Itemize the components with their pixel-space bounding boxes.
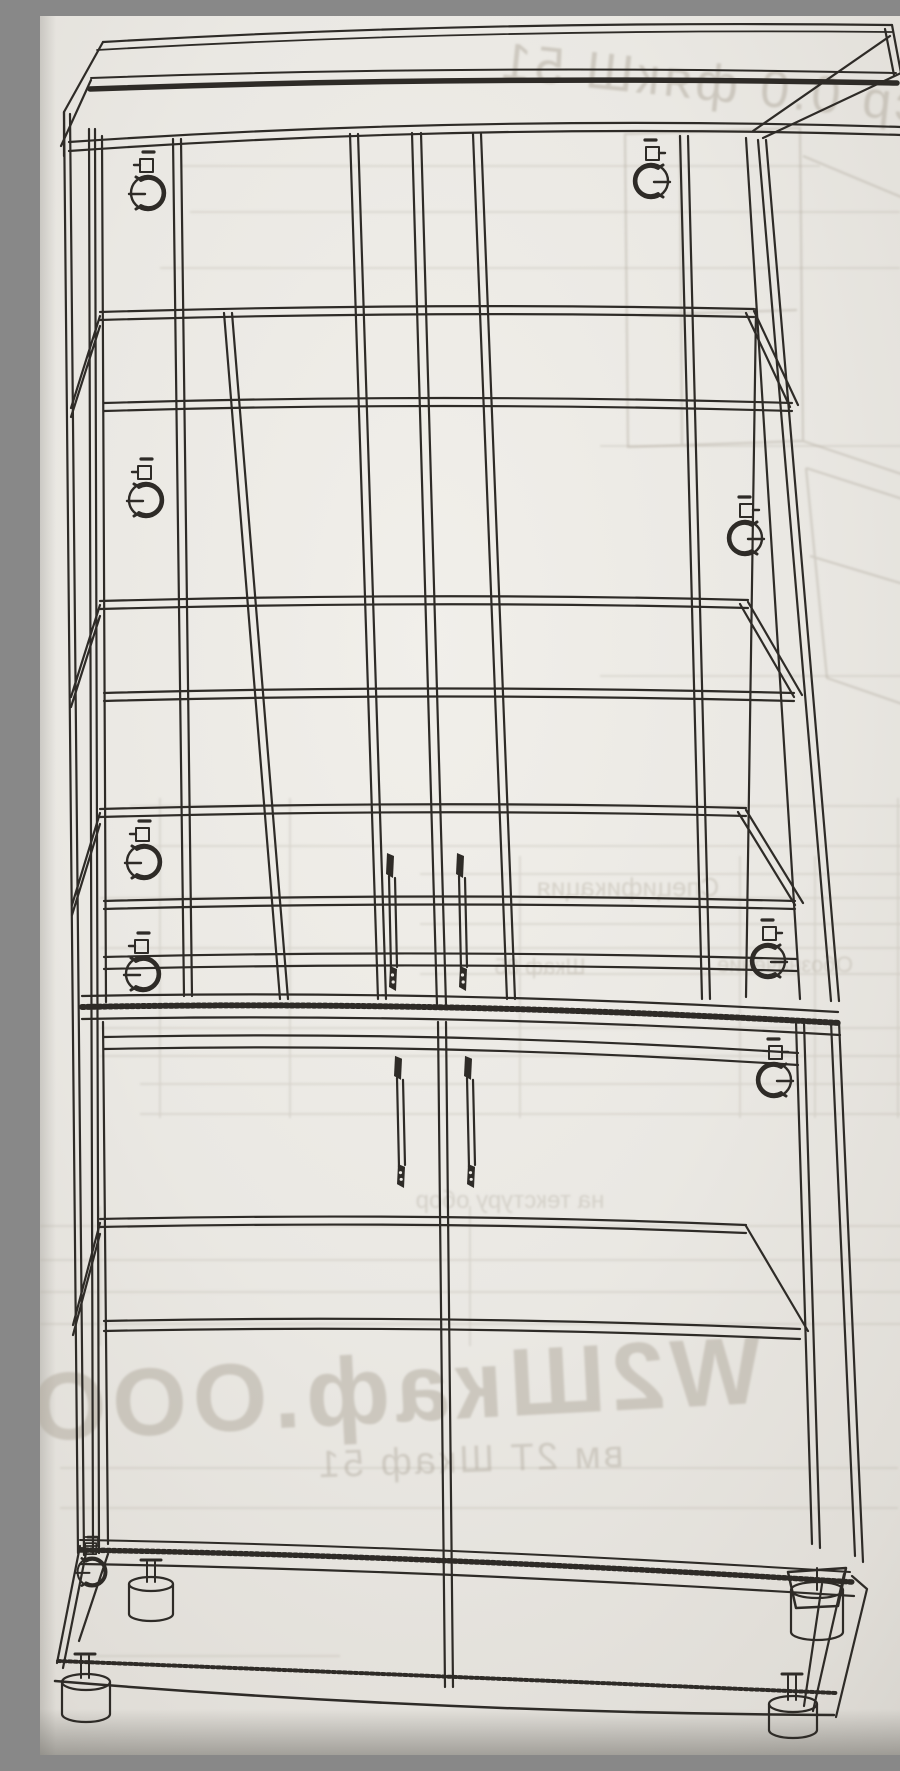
paper-background — [40, 16, 900, 1755]
cabinet-assembly-drawing-photo: ср 0.0 фякШ 51 W2Шкаф.ООО вм 2Т Шкаф 51 … — [40, 16, 900, 1755]
bleed-table-word-4: на текстуру обор — [416, 1187, 605, 1214]
